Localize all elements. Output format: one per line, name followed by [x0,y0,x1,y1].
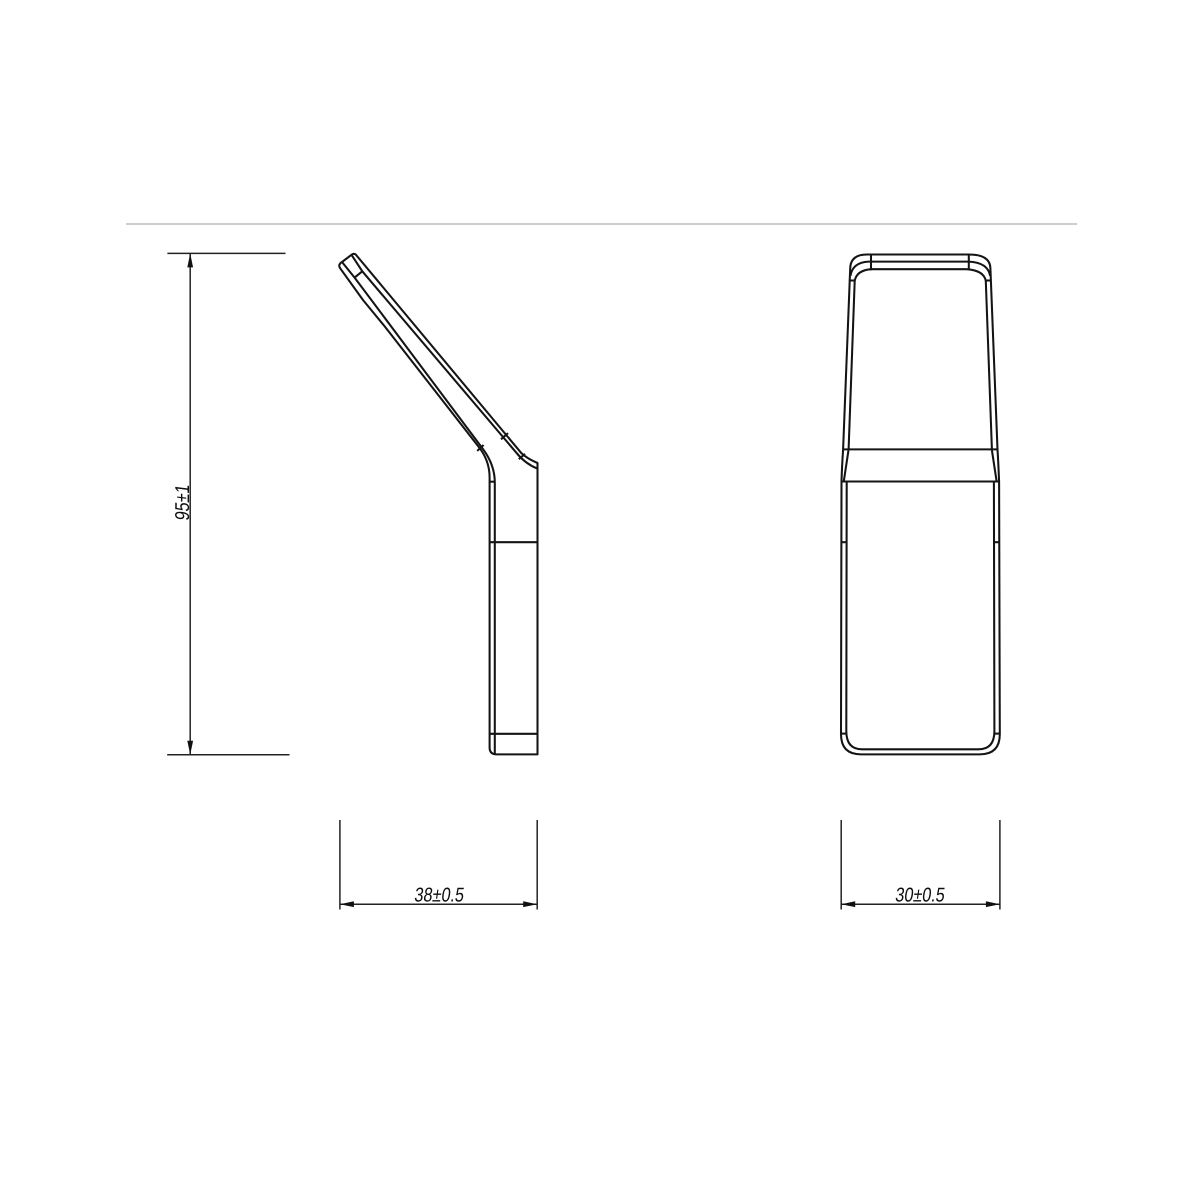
svg-text:30±0.5: 30±0.5 [894,883,947,906]
svg-text:95±1: 95±1 [171,483,194,522]
svg-text:38±0.5: 38±0.5 [413,883,466,906]
